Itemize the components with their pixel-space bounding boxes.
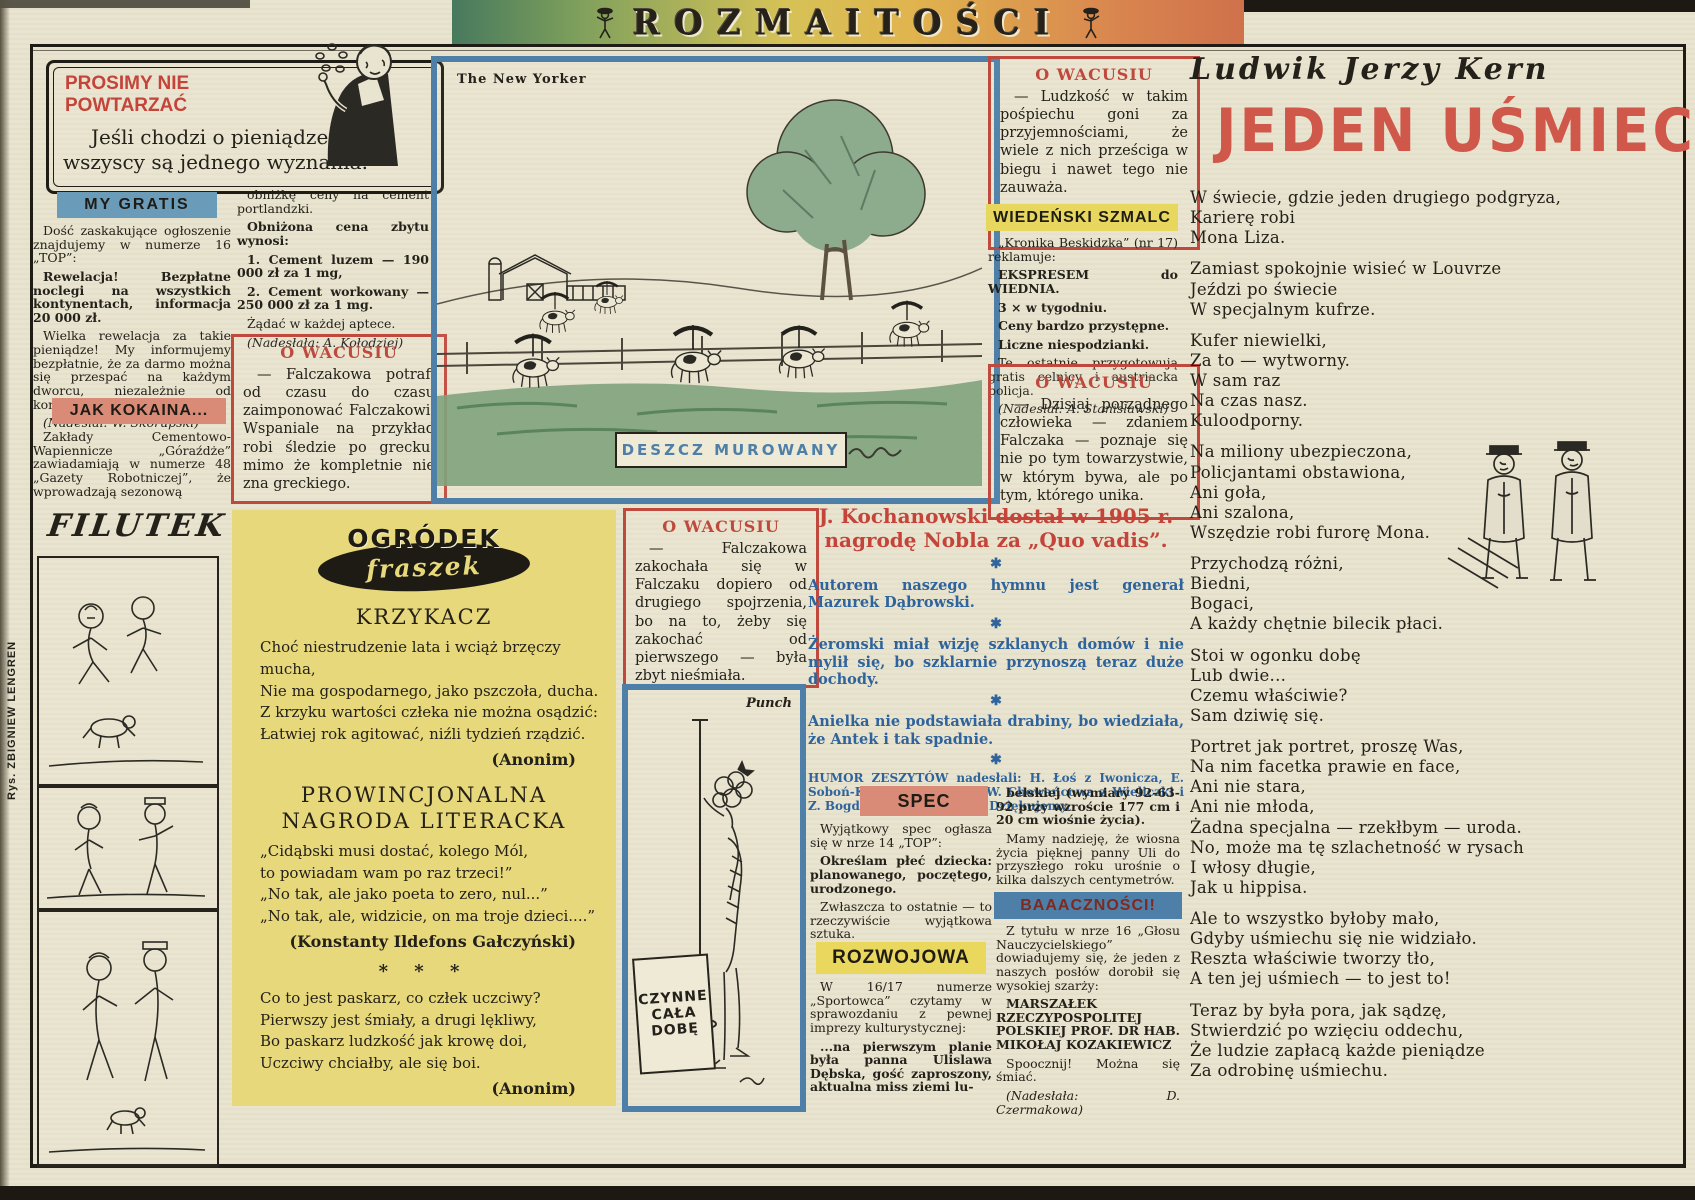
rozwojowa-header-label: ROZWOJOWA	[832, 947, 970, 969]
poem-line: Stoi w ogonku dobę	[1190, 646, 1690, 666]
poem-line: Uczciwy chciałby, ale się boi.	[260, 1053, 616, 1075]
poem-line: Na czas nasz.	[1190, 391, 1690, 411]
paragraph: Ceny bardzo przystępne.	[988, 319, 1178, 333]
prowincjonalna-title-1: PROWINCJONALNA	[232, 783, 616, 807]
jak-kokaina-header-label: JAK KOKAINA...	[70, 402, 208, 420]
cartoon-caption: DESZCZ MUROWANY	[622, 441, 841, 459]
wiedenski-szmalc-header: WIEDEŃSKI SZMALC	[986, 204, 1178, 231]
poem-line: „No tak, ale jako poeta to zero, nul...”	[260, 884, 616, 906]
prowincjonalna-poem: „Cidąbski musi dostać, kolego Mól,to pow…	[260, 841, 616, 928]
page-title: ROZMAITOŚCI	[633, 2, 1064, 43]
paragraph: Obniżona cena zbytu wynosi:	[237, 220, 429, 247]
filutek-panel-2	[37, 786, 219, 910]
paragraph: „Kronika Beskidzka” (nr 17) reklamuje:	[988, 236, 1178, 263]
poem-line: W sam raz	[1190, 371, 1690, 391]
jak-kokaina-header: JAK KOKAINA...	[52, 398, 226, 424]
poem-line: Za to — wytworny.	[1190, 351, 1690, 371]
poem-line: Żadna specjalna — rzekłbym — uroda.	[1190, 818, 1690, 838]
poem-line: W świecie, gdzie jeden drugiego podgryza…	[1190, 188, 1690, 208]
poem-line: Reszta właściwie tworzy tło,	[1190, 949, 1690, 969]
poem-line: Co to jest paskarz, co człek uczciwy?	[260, 988, 616, 1010]
ogrodek-logo-text: OGRÓDEK	[309, 524, 539, 553]
poem-line: Sam dziwię się.	[1190, 706, 1690, 726]
poem-line: Mona Liza.	[1190, 228, 1690, 248]
scan-edge-top-left	[0, 0, 250, 8]
joke-text: Anielka nie podstawiała drabiny, bo wied…	[808, 693, 1184, 749]
poem-line: Zamiast spokojnie wisieć w Louvrze	[1190, 259, 1690, 279]
stanza: W świecie, gdzie jeden drugiego podgryza…	[1190, 188, 1690, 248]
cartoon-caption-box: DESZCZ MUROWANY	[615, 432, 847, 468]
banner-figure-icon	[595, 5, 615, 39]
paragraph: W 16/17 numerze „Sportowca” czytamy w sp…	[810, 980, 992, 1035]
o-wacusiu-box-1: O WACUSIU — Falczakowa potrafi od czasu …	[231, 334, 447, 504]
paragraph: Z tytułu w nrze 16 „Głosu Nauczycielskie…	[996, 924, 1180, 992]
o-wacusiu-header: O WACUSIU	[1000, 373, 1188, 392]
paragraph: EKSPRESEM do WIEDNIA.	[988, 268, 1178, 295]
my-gratis-header-label: MY GRATIS	[84, 196, 189, 214]
paragraph: Wyjątkowy spec ogłasza się w nrze 14 „TO…	[810, 822, 992, 849]
artist-byline: Rys. ZBIGNIEW LENGREN	[6, 620, 18, 800]
poem-line: Portret jak portret, proszę Was,	[1190, 737, 1690, 757]
o-wacusiu-header: O WACUSIU	[635, 517, 807, 536]
o-wacusiu-text: — Falczakowa zakochała się w Falczaku do…	[635, 540, 807, 685]
o-wacusiu-text: — Falczakowa potrafi od czasu do czasu z…	[243, 366, 435, 493]
my-gratis-header: MY GRATIS	[57, 192, 217, 218]
new-yorker-label: The New Yorker	[457, 72, 587, 87]
paragraph: Określam płeć dziecka: planowanego, pocz…	[810, 854, 992, 895]
paragraph: belskiej (wymiary 92-63-92 przy wzroście…	[996, 786, 1180, 827]
author-name: Ludwik Jerzy Kern	[1190, 52, 1549, 87]
baacznosci-body: Z tytułu w nrze 16 „Głosu Nauczycielskie…	[996, 924, 1180, 1121]
poem-line: Że ludzie zapłacą każde pieniądze	[1190, 1041, 1690, 1061]
paragraph: Spoocznij! Można się śmiać.	[996, 1057, 1180, 1084]
poem-line: Jak u hippisa.	[1190, 878, 1690, 898]
paragraph: obniżkę ceny na cement portlandzki.	[237, 188, 429, 215]
poem-line: Ani nie młoda,	[1190, 797, 1690, 817]
poem-line: Jeździ po świecie	[1190, 280, 1690, 300]
stars-separator: * * *	[232, 961, 616, 982]
poem-line: Gdyby uśmiechu się nie widziało.	[1190, 929, 1690, 949]
poem-line: Łatwiej rok agitować, niźli tydzień rząd…	[260, 724, 616, 746]
humor-jokes: Autorem naszego hymnu jest generał Mazur…	[808, 556, 1184, 748]
o-wacusiu-header: O WACUSIU	[243, 343, 435, 362]
poem-line: to powiadam wam po raz trzeci!”	[260, 863, 616, 885]
joke-text: Autorem naszego hymnu jest generał Mazur…	[808, 556, 1184, 612]
o-wacusiu-box-4: O WACUSIU — Falczakowa zakochała się w F…	[623, 508, 819, 688]
scan-edge-bottom	[0, 1186, 1695, 1200]
punch-cartoon: Punch CZYNNECAŁADOBĘ	[622, 684, 806, 1112]
poem-line: No, może ma tę szlachetność w rysach	[1190, 838, 1690, 858]
paragraph: Mamy nadzieję, że wiosna życia pięknej p…	[996, 832, 1180, 887]
poem-line: Czemu właściwie?	[1190, 686, 1690, 706]
poem-line: Za odrobinę uśmiechu.	[1190, 1061, 1690, 1081]
paragraph: Rewelacja! Bezpłatne noclegi na wszystki…	[33, 270, 231, 325]
stanza: Ale to wszystko byłoby mało,Gdyby uśmiec…	[1190, 909, 1690, 990]
prowincjonalna-title-2: NAGRODA LITERACKA	[232, 809, 616, 833]
paragraph: (Nadesłała: D. Czermakowa)	[996, 1089, 1180, 1116]
baacznosci-header: BAAACZNOŚCI!	[994, 892, 1182, 919]
poem-line: Kufer niewielki,	[1190, 331, 1690, 351]
poem-line: Na nim facetka prawie en face,	[1190, 757, 1690, 777]
paskarz-credit: (Anonim)	[232, 1079, 576, 1098]
krzykacz-credit: (Anonim)	[232, 750, 576, 769]
humor-zeszytow-block: J. Kochanowski dostał w 1905 r. nagrodę …	[808, 504, 1184, 814]
paragraph: Zwłaszcza to ostatnie — to rzeczywiście …	[810, 900, 992, 941]
humor-headline-2: nagrodę Nobla za „Quo vadis”.	[808, 528, 1184, 552]
rozwojowa-body: W 16/17 numerze „Sportowca” czytamy w sp…	[810, 980, 992, 1099]
frame-top-rule2	[30, 50, 1686, 51]
filutek-title: FILUTEK	[45, 508, 228, 544]
poem-line: Teraz by była pora, jak sądzę,	[1190, 1001, 1690, 1021]
poem-line: A każdy chętnie bilecik płaci.	[1190, 614, 1690, 634]
krzykacz-poem: Choć niestrudzenie lata i wciąż brzęczy …	[260, 637, 616, 746]
prosimy-title: PROSIMY NIE POWTARZAĆ	[65, 73, 189, 117]
paskarz-poem: Co to jest paskarz, co człek uczciwy?Pie…	[260, 988, 616, 1075]
punch-label: Punch	[746, 696, 792, 711]
newspaper-page: ROZMAITOŚCI PROSIMY NIE POWTARZAĆ Jeśli …	[0, 0, 1695, 1200]
poem-line: Kuloodporny.	[1190, 411, 1690, 431]
krzykacz-title: KRZYKACZ	[232, 605, 616, 629]
frame-left-rule	[30, 44, 33, 1168]
poem-line: A ten jej uśmiech — to jest to!	[1190, 969, 1690, 989]
stanza: Portret jak portret, proszę Was,Na nim f…	[1190, 737, 1690, 898]
poem-line: Pierwszy jest śmiały, a drugi lękliwy,	[260, 1010, 616, 1032]
poem-line: Choć niestrudzenie lata i wciąż brzęczy …	[260, 637, 616, 681]
paragraph: Żądać w każdej aptece.	[237, 317, 429, 331]
poem-line: Z krzyku wartości człeka nie można osądz…	[260, 702, 616, 724]
poem-line: Stwierdzić po wzięciu oddechu,	[1190, 1021, 1690, 1041]
paragraph: 2. Cement workowany — 250 000 zł za 1 mg…	[237, 285, 429, 312]
stanza: Stoi w ogonku dobęLub dwie...Czemu właśc…	[1190, 646, 1690, 727]
paragraph: ...na pierwszym planie była panna Ulisla…	[810, 1040, 992, 1095]
ogrodek-fraszek-logo: OGRÓDEK fraszek	[309, 524, 539, 591]
poem-line: Karierę robi	[1190, 208, 1690, 228]
poem-line: „Cidąbski musi dostać, kolego Mól,	[260, 841, 616, 863]
o-wacusiu-box-3: O WACUSIU — Dzisiaj porządnego człowieka…	[988, 364, 1200, 520]
sign-line: DOBĘ	[651, 1020, 700, 1039]
frame-bottom-rule	[30, 1164, 1686, 1168]
poem-line: Ani nie stara,	[1190, 777, 1690, 797]
o-wacusiu-text: — Ludzkość w takim pośpiechu goni za prz…	[1000, 88, 1188, 197]
scan-edge-top-right	[1230, 0, 1695, 12]
filutek-panel-1	[37, 556, 219, 786]
rozwojowa-header: ROZWOJOWA	[816, 942, 986, 974]
czynne-sign: CZYNNECAŁADOBĘ	[632, 953, 716, 1074]
banner-figure-icon	[1081, 5, 1101, 39]
fraszki-box: OGRÓDEK fraszek KRZYKACZ Choć niestrudze…	[232, 510, 616, 1106]
jak-kokaina-body: Zakłady Cementowo-Wapiennicze „Góraźdże”…	[33, 430, 231, 503]
paragraph: 3 × w tygodniu.	[988, 301, 1178, 315]
new-yorker-cartoon: The New Yorker DESZCZ MUROWANY	[431, 56, 1000, 504]
wiedenski-szmalc-label: WIEDEŃSKI SZMALC	[993, 209, 1171, 227]
prosimy-title-line1: PROSIMY NIE	[65, 73, 189, 95]
poem-line: Ale to wszystko byłoby mało,	[1190, 909, 1690, 929]
stanza: Zamiast spokojnie wisieć w LouvrzeJeździ…	[1190, 259, 1690, 319]
stanza: Kufer niewielki,Za to — wytworny.W sam r…	[1190, 331, 1690, 432]
poem-title-jeden-usmiech: JEDEN UŚMIECH	[1216, 96, 1695, 165]
joke-text: Żeromski miał wizję szklanych domów i ni…	[808, 616, 1184, 689]
poem-line: Bo paskarz ludzkość jak krowę doi,	[260, 1031, 616, 1053]
poem-line: Lub dwie...	[1190, 666, 1690, 686]
stanza: Teraz by była pora, jak sądzę,Stwierdzić…	[1190, 1001, 1690, 1082]
jeden-usmiech-poem: W świecie, gdzie jeden drugiego podgryza…	[1190, 188, 1690, 1092]
prosimy-title-line2: POWTARZAĆ	[65, 95, 189, 117]
cement-body: obniżkę ceny na cement portlandzki.Obniż…	[237, 188, 429, 354]
o-wacusiu-header: O WACUSIU	[1000, 65, 1188, 84]
spec-header-label: SPEC	[897, 791, 950, 812]
page-banner: ROZMAITOŚCI	[452, 0, 1244, 46]
scan-edge-left	[0, 0, 10, 1200]
paragraph: MARSZAŁEK RZECZYPOSPOLITEJ POLSKIEJ PROF…	[996, 997, 1180, 1052]
paragraph: 1. Cement luzem — 190 000 zł za 1 mg,	[237, 253, 429, 280]
paragraph: Zakłady Cementowo-Wapiennicze „Góraźdże”…	[33, 430, 231, 498]
prowincjonalna-credit: (Konstanty Ildefons Gałczyński)	[232, 932, 576, 951]
paragraph: Dość zaskakujące ogłoszenie znajdujemy w…	[33, 224, 231, 265]
baacznosci-header-label: BAAACZNOŚCI!	[1020, 897, 1156, 915]
poem-line: I włosy długie,	[1190, 858, 1690, 878]
fraszek-logo-text: fraszek	[366, 550, 483, 583]
spec-header: SPEC	[860, 786, 988, 816]
coin-man-cartoon	[300, 26, 420, 166]
o-wacusiu-text: — Dzisiaj porządnego człowieka — zdaniem…	[1000, 396, 1188, 505]
humor-headline-1: J. Kochanowski dostał w 1905 r.	[808, 504, 1184, 528]
filutek-panel-3	[37, 910, 219, 1168]
poem-line: W specjalnym kufrze.	[1190, 300, 1690, 320]
two-men-cartoon	[1438, 438, 1638, 598]
poem-line: Nie ma gospodarnego, jako pszczoła, duch…	[260, 681, 616, 703]
paragraph: Liczne niespodzianki.	[988, 338, 1178, 352]
poem-line: „No tak, ale, widzicie, on ma troje dzie…	[260, 906, 616, 928]
